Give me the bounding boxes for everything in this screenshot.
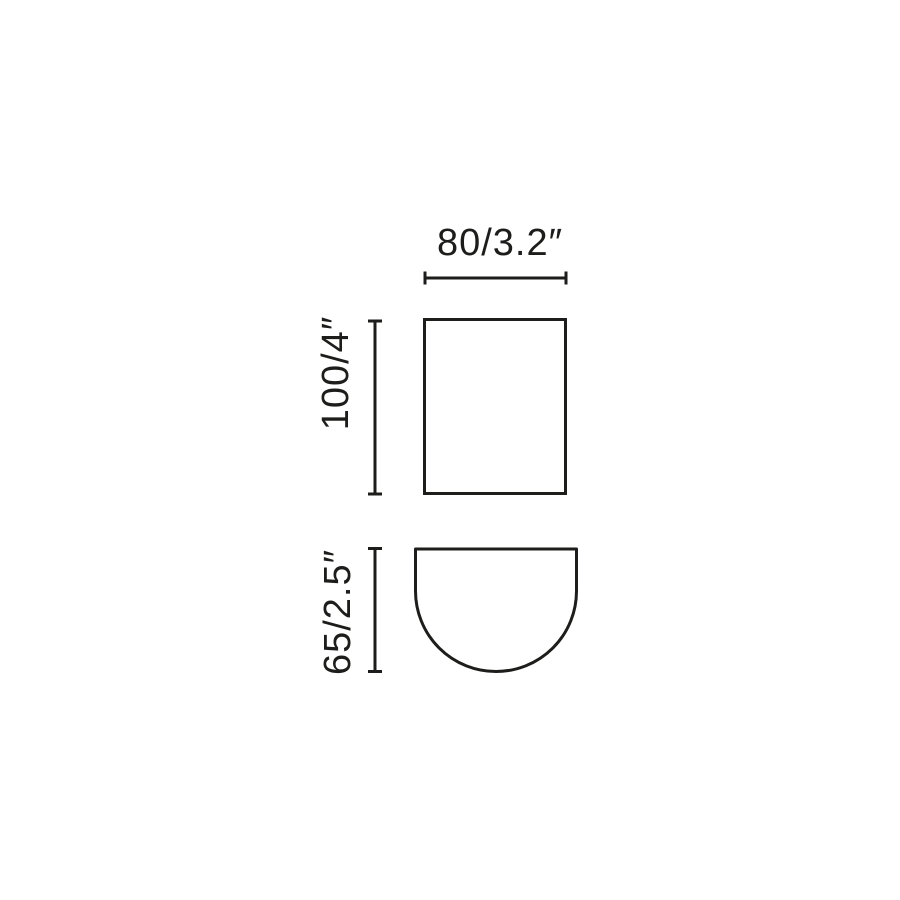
dimension-diagram: 80/3.2″ 100/4″ 65/2.5″ — [0, 0, 900, 900]
side-view-outline — [416, 549, 577, 672]
depth-dimension-line — [368, 549, 382, 672]
front-view-outline — [425, 320, 566, 494]
drawing-canvas — [0, 0, 900, 900]
width-dimension-label: 80/3.2″ — [437, 224, 563, 262]
height-dimension-line — [368, 321, 382, 494]
depth-dimension-label: 65/2.5″ — [319, 549, 357, 675]
width-dimension-line — [425, 272, 566, 285]
height-dimension-label: 100/4″ — [317, 316, 355, 431]
